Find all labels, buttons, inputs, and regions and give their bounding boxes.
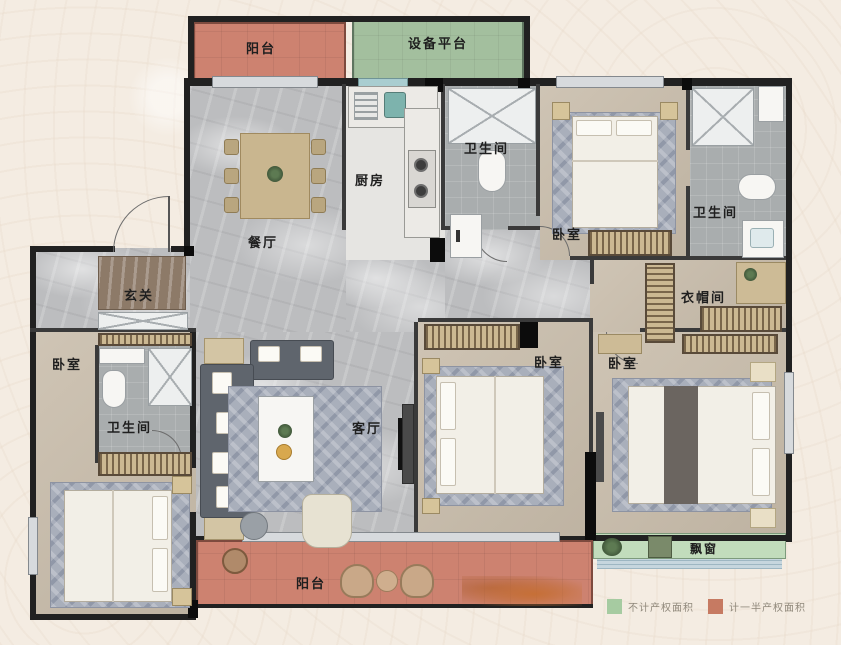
legend-label: 计一半产权面积	[729, 599, 806, 614]
window-dining-balcony	[212, 76, 318, 88]
column-entry	[184, 246, 194, 256]
wall-bedrooms-top-mid	[418, 318, 593, 322]
balcony-chair	[340, 564, 374, 598]
room-label-balcony-top: 阳台	[246, 38, 276, 57]
bedroom-left-pillow	[152, 496, 168, 540]
room-label-balcony-bottom: 阳台	[296, 573, 326, 592]
dining-chair	[311, 139, 326, 155]
wall-right-outer	[786, 78, 792, 542]
bedroomTR-nightstand	[552, 102, 570, 120]
bath-left-toilet	[102, 370, 126, 408]
bay-window-glass	[597, 559, 782, 569]
room-label-bedroom-left: 卧室	[52, 354, 82, 373]
wall-top-outer	[188, 16, 530, 22]
bench-pillow	[300, 346, 322, 362]
hall-appliance-handle	[456, 230, 460, 242]
bedroom-middle-wardrobe	[424, 324, 520, 350]
room-label-foyer: 玄关	[124, 285, 154, 304]
wall-living-bedroommid	[414, 322, 418, 540]
bedroom-middle-pillow	[440, 382, 456, 430]
balcony-planter	[222, 548, 248, 574]
cloak-desk	[736, 262, 786, 304]
floorplan-page: { "plan": { "title": "四室两厅户型图", "rooms":…	[0, 0, 841, 645]
wall-equipment-right	[524, 16, 530, 86]
room-label-bathTR: 卫生间	[693, 202, 738, 221]
cloak-plant	[744, 268, 757, 281]
wall-bedroomTR-bottom	[570, 256, 690, 260]
window-left-wall	[28, 517, 38, 575]
bedroom-middle-nightstand	[422, 498, 440, 514]
column-kitchen-bottom	[430, 238, 445, 262]
master-pillow	[752, 448, 770, 496]
bedroomTR-nightstand	[660, 102, 678, 120]
living-tv-console	[402, 404, 414, 484]
living-tv	[398, 418, 402, 470]
master-tv	[596, 412, 604, 482]
legend-item-no-property-area: 不计产权面积	[607, 599, 694, 614]
wall-bedroomTR-left	[536, 84, 540, 216]
balcony-table	[376, 570, 398, 592]
bedroom-left-blanket	[112, 490, 114, 602]
bench-pillow	[258, 346, 280, 362]
bathTR-toilet	[738, 174, 776, 200]
wall-balcony-bottom-left	[192, 540, 196, 608]
hall-appliance	[450, 214, 482, 258]
entry-door-arc	[113, 196, 169, 252]
wall-bath-middle-bottom2	[508, 226, 540, 230]
bedroom-left-wardrobe	[98, 452, 192, 476]
entry-door-leaf	[168, 196, 170, 252]
balcony-foliage	[462, 576, 582, 606]
room-label-bath-middle: 卫生间	[464, 138, 509, 157]
bedroomTR-blanket	[572, 160, 658, 162]
room-label-kitchen: 厨房	[355, 170, 385, 189]
room-label-dining: 餐厅	[248, 232, 278, 251]
wall-bathTR-left2	[686, 186, 690, 260]
cloak-wardrobe-horizontal	[700, 306, 782, 332]
living-armchair	[302, 494, 352, 548]
master-dresser	[598, 334, 642, 354]
room-label-cloakroom: 衣帽间	[681, 287, 726, 306]
wall-entry-left	[30, 246, 115, 252]
legend-label: 不计产权面积	[628, 599, 694, 614]
dining-chair	[224, 197, 239, 213]
column-bathTR-corner	[682, 78, 692, 90]
bath-left-vanity	[99, 348, 145, 364]
bedroomTR-pillow	[616, 120, 652, 136]
coffee-table-plant	[278, 424, 292, 438]
bedroom-left-nightstand	[172, 588, 192, 606]
wall-cloak-left	[590, 260, 594, 284]
master-pillow	[752, 392, 770, 440]
room-label-master: 卧室	[608, 353, 638, 372]
wall-kitchen-bath	[441, 84, 445, 230]
legend-item-half-property-area: 计一半产权面积	[708, 599, 806, 614]
bedroom-left-pillow	[152, 548, 168, 592]
column-master-wall	[585, 452, 596, 540]
room-label-living: 客厅	[352, 418, 382, 437]
room-label-bedroom-mid: 卧室	[534, 352, 564, 371]
balcony-chair	[400, 564, 434, 598]
bedroom-left-nightstand	[172, 476, 192, 494]
living-round-table	[240, 512, 268, 540]
master-nightstand	[750, 508, 776, 528]
master-wardrobe	[682, 334, 778, 354]
living-side-table	[204, 338, 244, 364]
bedroom-middle-pillow	[440, 438, 456, 486]
bedroom-middle-blanket	[494, 376, 496, 494]
kitchen-sink	[384, 92, 406, 118]
room-label-equipment: 设备平台	[408, 33, 468, 52]
room-label-bath-left: 卫生间	[107, 417, 152, 436]
wall-kitchen-dining	[342, 84, 346, 230]
column-hall-corner	[520, 322, 538, 348]
stove-burner	[414, 184, 428, 198]
bay-window-plant	[602, 538, 622, 556]
dining-plant	[267, 166, 283, 182]
bath-left-shower	[148, 348, 192, 406]
master-bed-throw	[664, 386, 698, 504]
bath-middle-shower	[448, 88, 536, 144]
wall-bathTR-left	[686, 84, 690, 150]
window-bedroomTR	[556, 76, 664, 88]
bedroomTR-wardrobe	[588, 230, 672, 256]
foyer-shoe-cabinet	[98, 312, 188, 330]
wall-dining-left	[184, 78, 190, 252]
room-label-bay-window: 飘窗	[690, 540, 718, 557]
bedroom-left-cabinet	[98, 333, 192, 346]
coffee-table-tray	[276, 444, 292, 460]
bay-window-box	[648, 536, 672, 558]
slider-living-balcony	[242, 532, 560, 542]
living-coffee-table	[258, 396, 314, 482]
window-right-wall	[784, 372, 794, 454]
bedroomTR-pillow	[576, 120, 612, 136]
bathTR-shower	[692, 88, 754, 146]
stove-burner	[414, 158, 428, 172]
bathTR-washer	[758, 86, 784, 122]
legend-swatch-red	[708, 599, 723, 614]
wall-bottom-left	[30, 614, 196, 620]
kitchen-dish-rack	[354, 92, 378, 120]
dining-chair	[311, 168, 326, 184]
bathTR-basin	[750, 228, 774, 248]
master-nightstand	[750, 362, 776, 382]
wall-balcony-top-left	[188, 16, 194, 86]
cloak-wardrobe-vertical	[645, 263, 675, 343]
legend-swatch-green	[607, 599, 622, 614]
dining-chair	[311, 197, 326, 213]
dining-chair	[224, 139, 239, 155]
bedroom-middle-nightstand	[422, 358, 440, 374]
dining-chair	[224, 168, 239, 184]
room-label-bedroomTR: 卧室	[552, 224, 582, 243]
